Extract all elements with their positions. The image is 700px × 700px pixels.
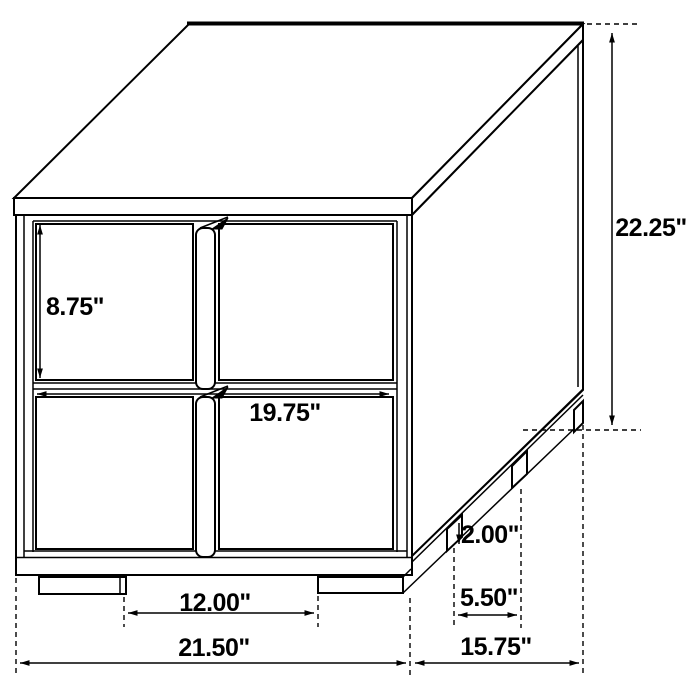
- drawer-panel-bottom-left: [36, 397, 193, 549]
- nightstand-drawing-canvas: 8.75" 19.75" 22.25" 2.00" 5.50" 12.00" 2…: [0, 0, 700, 700]
- drawer-panel-top-right: [219, 224, 393, 380]
- cabinet-top-front-band: [14, 198, 412, 215]
- dimension-label-drawer-face-height: 8.75": [46, 293, 104, 321]
- bottom-drawer-handle: [196, 397, 215, 557]
- dimension-foot-height: 2.00": [459, 521, 519, 549]
- dimension-label-foot-height: 2.00": [461, 521, 519, 549]
- front-foot-right: [318, 577, 403, 593]
- front-foot-left: [39, 577, 126, 594]
- top-drawer-handle: [196, 228, 215, 389]
- dimension-label-side-feet-gap: 5.50": [460, 584, 518, 612]
- corner-foot-back: [574, 401, 583, 432]
- furniture-dimension-diagram: 8.75" 19.75" 22.25" 2.00" 5.50" 12.00" 2…: [0, 0, 700, 700]
- dimension-front-feet-gap: 12.00": [124, 589, 318, 627]
- dimension-label-overall-width: 21.50": [178, 634, 249, 662]
- dimension-label-front-feet-gap: 12.00": [179, 589, 250, 617]
- dimension-side-feet-gap: 5.50": [454, 489, 521, 628]
- dimension-label-drawer-width: 19.75": [249, 399, 320, 427]
- dimension-label-overall-depth: 15.75": [460, 633, 531, 661]
- dimension-label-overall-height: 22.25": [615, 214, 686, 242]
